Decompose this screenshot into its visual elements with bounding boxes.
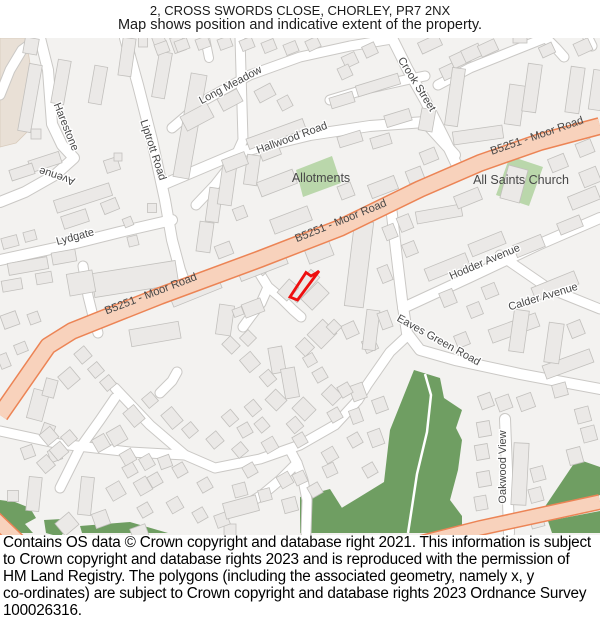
svg-text:Oakwood View: Oakwood View bbox=[497, 430, 509, 503]
svg-text:All Saints Church: All Saints Church bbox=[473, 173, 569, 187]
svg-text:Allotments: Allotments bbox=[292, 171, 350, 185]
